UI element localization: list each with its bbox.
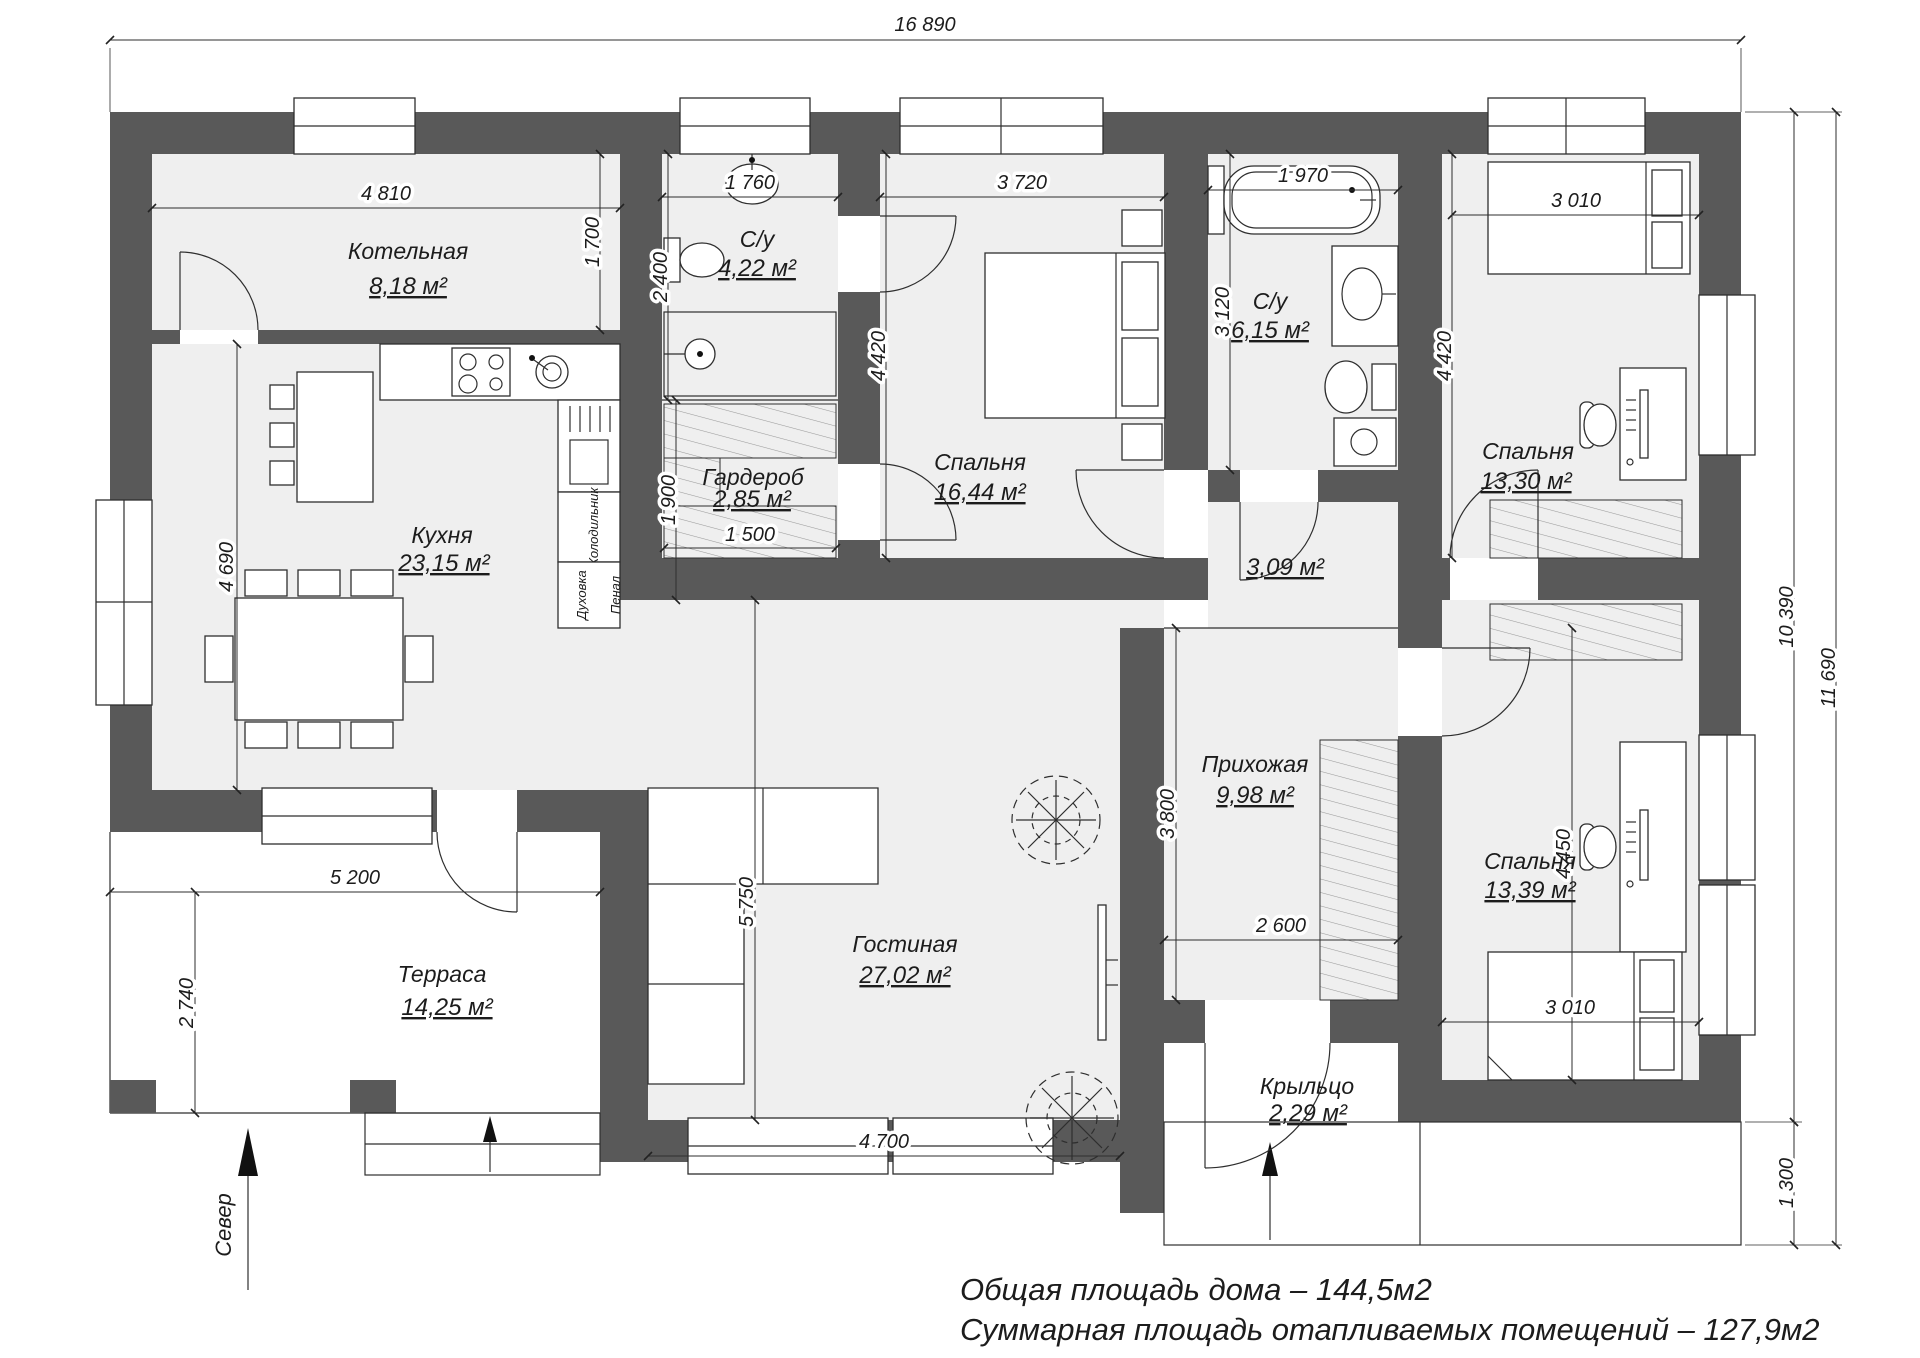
bedroom3-closet — [1490, 604, 1682, 660]
stool — [270, 423, 294, 447]
nightstand — [1122, 210, 1162, 246]
bed-double — [985, 253, 1165, 418]
chair — [351, 722, 393, 748]
chair — [298, 570, 340, 596]
dim-entry-w: 2 600 — [1255, 915, 1306, 937]
dim-side-total: 11 690 — [1818, 648, 1840, 708]
window — [680, 98, 810, 154]
window — [1488, 98, 1645, 154]
dim-porch-h: 1 300 — [1776, 1158, 1798, 1208]
room-bedroom3-area: 13,39 м² — [1484, 877, 1576, 904]
room-living-name: Гостиная — [852, 931, 957, 957]
bedroom2-closet — [1490, 500, 1682, 558]
summary-block: Общая площадь дома – 144,5м2 Суммарная п… — [960, 1272, 1820, 1347]
dim-bedroom2-w: 3 010 — [1551, 190, 1601, 212]
washer-icon — [1334, 418, 1396, 466]
chair — [245, 570, 287, 596]
entry-arrow — [1262, 1142, 1278, 1240]
north-label: Север — [211, 1193, 236, 1257]
pillow — [1652, 170, 1682, 216]
terrace-steps — [365, 1113, 600, 1175]
pillow — [1640, 1018, 1674, 1070]
kitchen-counter — [380, 344, 620, 400]
stool — [270, 385, 294, 409]
vanity-sink — [1332, 246, 1398, 346]
nightstand — [1122, 424, 1162, 460]
dim-bath2-w: 1 970 — [1278, 165, 1328, 187]
room-kitchen-area: 23,15 м² — [397, 550, 490, 577]
room-terrace-name: Терраса — [398, 961, 487, 987]
dim-kitchen-h: 4 690 — [216, 542, 238, 592]
room-porch-name: Крыльцо — [1260, 1073, 1354, 1099]
floor-plan: Холодильник Духовка Пенал — [0, 0, 1920, 1358]
room-bath1-area: 4,22 м² — [718, 255, 797, 282]
dim-terrace-w: 5 200 — [330, 867, 380, 889]
room-entry-area: 9,98 м² — [1216, 782, 1295, 809]
window — [262, 788, 432, 844]
terrace-post — [350, 1080, 396, 1113]
porch-platform — [1164, 1122, 1741, 1245]
stool — [270, 461, 294, 485]
dim-living-h: 5 750 — [736, 877, 758, 927]
door-arc — [437, 832, 517, 912]
chair — [205, 636, 233, 682]
dim-living-w: 4 700 — [859, 1131, 909, 1153]
fridge-label: Холодильник — [586, 487, 601, 568]
window — [1699, 735, 1755, 880]
dim-boiler-h: 1 700 — [582, 217, 604, 267]
room-bath2-area: 6,15 м² — [1231, 317, 1310, 344]
entry-closet — [1320, 740, 1398, 1000]
room-bedroom1-area: 16,44 м² — [934, 479, 1026, 506]
room-hall-area: 3,09 м² — [1246, 554, 1325, 581]
kitchen-island — [270, 372, 373, 502]
oven-label: Духовка — [574, 570, 589, 622]
stove-icon — [452, 348, 510, 396]
dim-bath1-h: 2 400 — [650, 252, 672, 303]
window — [900, 98, 1103, 154]
dim-bedroom1-h: 4 420 — [868, 331, 890, 381]
room-wardrobe-area: 2,85 м² — [712, 486, 792, 513]
chair — [245, 722, 287, 748]
north-arrow: Север — [211, 1128, 258, 1290]
room-bedroom2-name: Спальня — [1482, 438, 1574, 464]
wardrobe-shelf — [664, 404, 836, 458]
window — [1699, 295, 1755, 455]
dim-bedroom2-h: 4 420 — [1434, 331, 1456, 381]
room-bedroom2-area: 13,30 м² — [1480, 468, 1572, 495]
dim-boiler-w: 4 810 — [361, 183, 411, 205]
dim-wardrobe-w: 1 500 — [725, 524, 775, 546]
dim-side-inner: 10 390 — [1776, 586, 1798, 647]
dining-table — [235, 598, 403, 720]
dim-entry-h: 3 800 — [1157, 789, 1179, 839]
pillow — [1122, 262, 1158, 330]
room-living-area: 27,02 м² — [858, 962, 951, 989]
window — [893, 1118, 1053, 1174]
summary-line2: Суммарная площадь отапливаемых помещений… — [960, 1312, 1820, 1347]
monitor-icon — [1640, 390, 1648, 458]
cupboard-label: Пенал — [608, 575, 623, 614]
dim-bedroom1-w: 3 720 — [997, 172, 1047, 194]
terrace-post — [110, 1080, 156, 1113]
room-bath1-name: С/у — [740, 226, 776, 252]
fridge-cabinet: Холодильник Духовка Пенал — [558, 400, 623, 628]
room-entry-name: Прихожая — [1202, 751, 1309, 777]
desk — [1620, 742, 1686, 952]
dim-terrace-h: 2 740 — [176, 978, 198, 1029]
dim-total-width: 16 890 — [894, 14, 955, 36]
desk — [1620, 368, 1686, 480]
room-bedroom1-name: Спальня — [934, 449, 1026, 475]
room-porch-area: 2,29 м² — [1268, 1100, 1348, 1127]
window — [96, 500, 152, 705]
room-kitchen-name: Кухня — [411, 522, 472, 548]
chair — [351, 570, 393, 596]
room-boiler-area: 8,18 м² — [369, 273, 448, 300]
bed-double — [1488, 162, 1690, 274]
chair — [1580, 824, 1616, 870]
summary-line1: Общая площадь дома – 144,5м2 — [960, 1272, 1432, 1307]
pillow — [1652, 222, 1682, 268]
monitor-icon — [1640, 810, 1648, 880]
toilet-icon — [1325, 361, 1396, 413]
chair — [405, 636, 433, 682]
room-terrace-area: 14,25 м² — [401, 994, 493, 1021]
pillow — [1640, 960, 1674, 1012]
room-boiler-name: Котельная — [348, 238, 468, 264]
chair — [1580, 402, 1616, 448]
chair — [298, 722, 340, 748]
window — [294, 98, 415, 154]
dim-bath1-w: 1 760 — [725, 172, 775, 194]
dim-wardrobe-h: 1 900 — [658, 475, 680, 525]
pillow — [1122, 338, 1158, 406]
room-bath2-name: С/у — [1253, 288, 1289, 314]
floor-plan-page: Холодильник Духовка Пенал — [0, 0, 1920, 1358]
window — [1699, 885, 1755, 1035]
dim-bedroom3-w: 3 010 — [1545, 997, 1595, 1019]
room-bedroom3-name: Спальня — [1484, 848, 1576, 874]
